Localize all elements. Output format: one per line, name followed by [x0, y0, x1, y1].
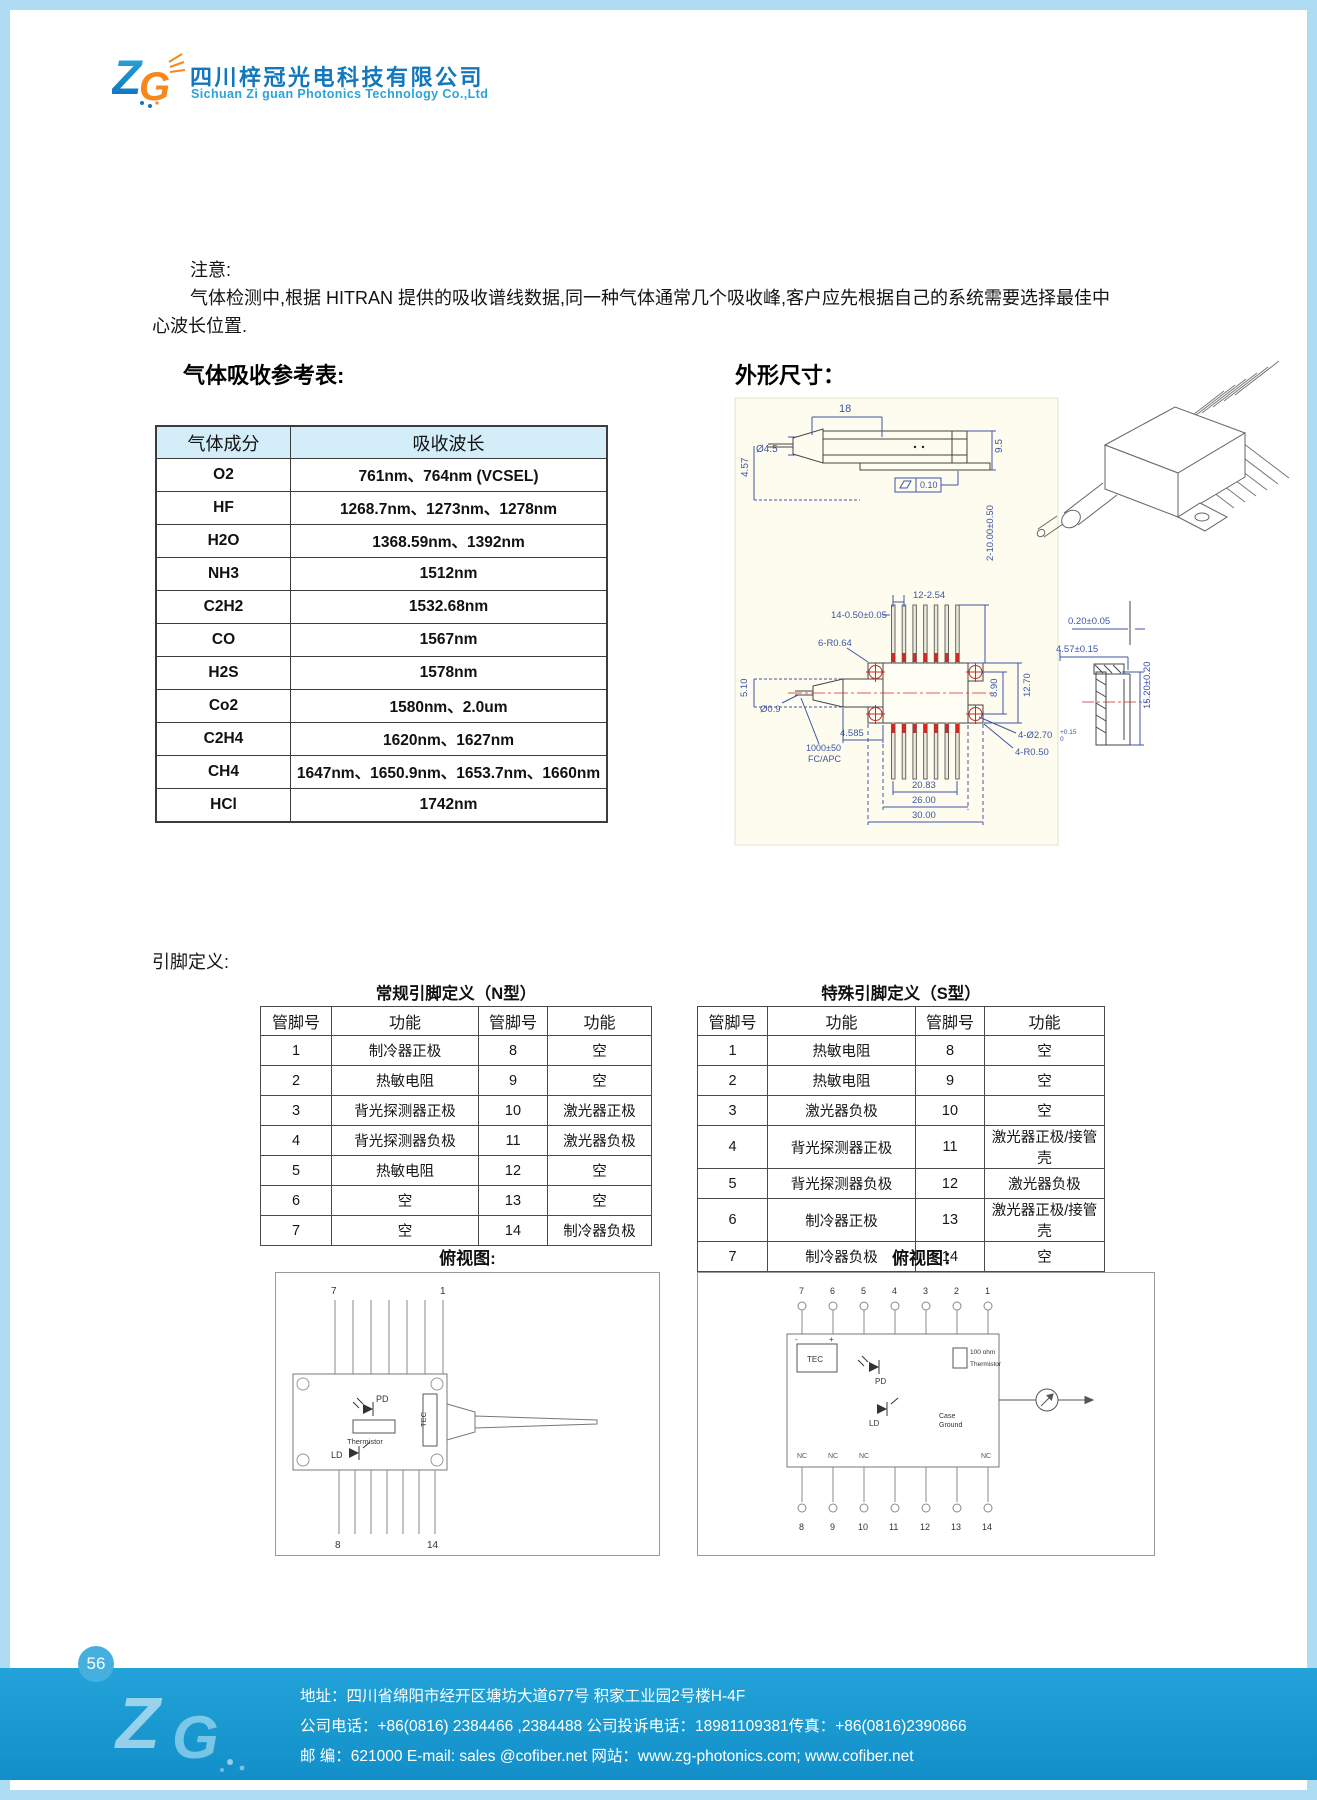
weld-dot — [914, 446, 916, 448]
weld-dot — [922, 446, 924, 448]
s-bottom-pin-num: 14 — [982, 1522, 992, 1532]
table-cell: 激光器正极 — [548, 1096, 652, 1126]
table-cell: 11 — [479, 1126, 548, 1156]
s-bottom-pin-num: 13 — [951, 1522, 961, 1532]
table-cell: 2 — [698, 1066, 768, 1096]
column-header: 管脚号 — [479, 1007, 548, 1036]
frame-top — [0, 0, 1317, 10]
dim-flatness: 0.10 — [920, 480, 938, 490]
table-cell: 1567nm — [291, 624, 608, 657]
s-bottom-pin-num: 8 — [799, 1522, 804, 1532]
table-cell: 背光探测器正极 — [332, 1096, 479, 1126]
table-cell: 背光探测器正极 — [768, 1126, 916, 1169]
table-cell: 1512nm — [291, 558, 608, 591]
table-row: 6制冷器正极13激光器正极/接管壳 — [698, 1199, 1105, 1242]
table-row: Co21580nm、2.0um — [156, 690, 607, 723]
s-bottom-pin-num: 11 — [889, 1522, 898, 1532]
s-res-label: 100 ohm — [970, 1349, 995, 1356]
dim-pin-pitch: 12-2.54 — [913, 590, 945, 601]
s-top-pin-num: 6 — [830, 1286, 835, 1296]
table-cell: H2S — [156, 657, 291, 690]
table-row: 6空13空 — [261, 1186, 652, 1216]
column-header: 管脚号 — [261, 1007, 332, 1036]
dim-side-height: 4.57±0.15 — [1056, 644, 1098, 655]
table-row: 1制冷器正极8空 — [261, 1036, 652, 1066]
table-row: 7空14制冷器负极 — [261, 1216, 652, 1246]
table-row: 3背光探测器正极10激光器正极 — [261, 1096, 652, 1126]
s-case-label2: Ground — [939, 1422, 962, 1429]
table-cell: 空 — [332, 1186, 479, 1216]
table-cell: 3 — [261, 1096, 332, 1126]
table-cell: 激光器正极/接管壳 — [985, 1199, 1105, 1242]
table-cell: 10 — [479, 1096, 548, 1126]
s-top-pin-num: 3 — [923, 1286, 928, 1296]
dim-95: 9.5 — [994, 439, 1005, 453]
dim-w3: 30.00 — [912, 810, 936, 821]
table-row: 2热敏电阻9空 — [698, 1066, 1105, 1096]
table-cell: 3 — [698, 1096, 768, 1126]
dim-nose-length: 4.585 — [840, 728, 864, 739]
table-row: HCl1742nm — [156, 789, 607, 823]
table-cell: O2 — [156, 459, 291, 492]
table-row: 4背光探测器负极11激光器负极 — [261, 1126, 652, 1156]
s-topview-label: 俯视图： — [697, 1244, 1155, 1269]
footer-logo-icon: Z G — [110, 1670, 300, 1778]
table-cell: 热敏电阻 — [768, 1036, 916, 1066]
n-pd-label: PD — [376, 1394, 389, 1404]
table-cell: 1580nm、2.0um — [291, 690, 608, 723]
table-cell: 空 — [985, 1096, 1105, 1126]
section-geometry — [1094, 664, 1130, 745]
table-cell: H2O — [156, 525, 291, 558]
n-pin8-label: 8 — [335, 1540, 341, 1551]
dim-pin-length: 2-10.00±0.50 — [985, 505, 996, 561]
s-tec-label: TEC — [807, 1355, 823, 1364]
table-cell: 空 — [548, 1186, 652, 1216]
table-cell: 1647nm、1650.9nm、1653.7nm、1660nm — [291, 756, 608, 789]
table-cell: 2 — [261, 1066, 332, 1096]
note-line2: 心波长位置. — [152, 312, 247, 338]
table-header-row: 管脚号功能管脚号功能 — [261, 1007, 652, 1036]
table-row: CH41647nm、1650.9nm、1653.7nm、1660nm — [156, 756, 607, 789]
s-tec-minus: - — [795, 1335, 798, 1344]
s-bottom-pin-num: 10 — [858, 1522, 868, 1532]
table-row: 1热敏电阻8空 — [698, 1036, 1105, 1066]
table-cell: 激光器正极/接管壳 — [985, 1126, 1105, 1169]
table-cell: 5 — [698, 1169, 768, 1199]
table-row: 2热敏电阻9空 — [261, 1066, 652, 1096]
logo-rays-icon — [169, 54, 185, 72]
dim-fiber-stub: Ø0.9 — [760, 704, 781, 715]
table-row: H2S1578nm — [156, 657, 607, 690]
table-cell: 1 — [261, 1036, 332, 1066]
table-row: C2H21532.68nm — [156, 591, 607, 624]
dim-hole-span: 8.90 — [989, 679, 1000, 698]
page-number-badge: 56 — [78, 1646, 114, 1682]
column-header: 功能 — [768, 1007, 916, 1036]
table-row: C2H41620nm、1627nm — [156, 723, 607, 756]
s-case-label1: Case — [939, 1413, 955, 1420]
dim-side-length: 15.20±0.20 — [1142, 662, 1153, 709]
table-cell: 热敏电阻 — [332, 1066, 479, 1096]
column-header: 管脚号 — [698, 1007, 768, 1036]
table-cell: 13 — [479, 1186, 548, 1216]
table-cell: 14 — [479, 1216, 548, 1246]
footer-mail-web: 邮 编：621000 E-mail: sales @cofiber.net 网站… — [300, 1742, 967, 1772]
s-nc-label: NC — [797, 1453, 807, 1460]
footer-logo-z: Z — [114, 1684, 163, 1764]
dim-457: 4.57 — [740, 457, 751, 477]
footer-address: 地址：四川省绵阳市经开区塘坊大道677号 积家工业园2号楼H-4F — [300, 1682, 967, 1712]
gas-table-title: 气体吸收参考表: — [183, 358, 344, 390]
footer-phone: 公司电话：+86(0816) 2384466 ,2384488 公司投诉电话：1… — [300, 1712, 967, 1742]
isometric-view — [1036, 361, 1289, 538]
dim-ear-radius: 6-R0.64 — [818, 638, 852, 649]
company-name-en: Sichuan Zi guan Photonics Technology Co.… — [191, 87, 488, 101]
table-cell: 激光器负极 — [768, 1096, 916, 1126]
company-logo: Z G — [112, 50, 186, 108]
pin-definition-label: 引脚定义: — [152, 948, 229, 974]
dim-fiber-length: 1000±50 — [806, 743, 841, 753]
dim-18: 18 — [839, 403, 851, 415]
table-row: HF1268.7nm、1273nm、1278nm — [156, 492, 607, 525]
column-header: 管脚号 — [916, 1007, 985, 1036]
s-resistor-box — [953, 1348, 967, 1368]
table-cell: 1 — [698, 1036, 768, 1066]
table-cell: 空 — [548, 1156, 652, 1186]
note-title: 注意: — [190, 256, 231, 282]
table-cell: 激光器负极 — [548, 1126, 652, 1156]
footer-contact-block: 地址：四川省绵阳市经开区塘坊大道677号 积家工业园2号楼H-4F 公司电话：+… — [300, 1682, 967, 1772]
table-cell: 761nm、764nm (VCSEL) — [291, 459, 608, 492]
table-cell: 4 — [261, 1126, 332, 1156]
s-ld-label: LD — [869, 1419, 879, 1428]
n-ld-label: LD — [331, 1450, 343, 1460]
s-nc-label: NC — [859, 1453, 869, 1460]
s-tec-plus: + — [829, 1335, 834, 1344]
table-cell: 9 — [916, 1066, 985, 1096]
table-cell: CH4 — [156, 756, 291, 789]
table-cell: 热敏电阻 — [768, 1066, 916, 1096]
table-cell: 激光器负极 — [985, 1169, 1105, 1199]
dim-fiber-dia: Ø4.5 — [756, 444, 778, 455]
table-row: O2761nm、764nm (VCSEL) — [156, 459, 607, 492]
table-cell: 制冷器正极 — [768, 1199, 916, 1242]
dim-hole-tol: +0.15 — [1060, 729, 1077, 736]
table-cell: 8 — [479, 1036, 548, 1066]
table-cell: NH3 — [156, 558, 291, 591]
dim-hole-dia: 4-Ø2.70 — [1018, 730, 1052, 741]
outline-drawing: 18 Ø4.5 4.57 9.5 0.10 — [700, 345, 1300, 857]
frame-left — [0, 0, 10, 1800]
table-cell: 1368.59nm、1392nm — [291, 525, 608, 558]
dim-w2: 26.00 — [912, 795, 936, 806]
table-cell: 8 — [916, 1036, 985, 1066]
dim-pin-width: 14-0.50±0.05 — [831, 610, 887, 621]
table-row: CO1567nm — [156, 624, 607, 657]
table-cell: 背光探测器负极 — [768, 1169, 916, 1199]
s-top-pin-num: 4 — [892, 1286, 897, 1296]
s-topview-diagram: 7 6 5 4 3 2 1 TEC - + PD — [697, 1272, 1155, 1556]
table-cell: 12 — [479, 1156, 548, 1186]
column-header: 气体成分 — [156, 426, 291, 459]
table-row: 4背光探测器正极11激光器正极/接管壳 — [698, 1126, 1105, 1169]
s-top-pin-num: 5 — [861, 1286, 866, 1296]
table-cell: 空 — [985, 1036, 1105, 1066]
s-nc-label: NC — [828, 1453, 838, 1460]
table-cell: 9 — [479, 1066, 548, 1096]
s-nc-label: NC — [981, 1453, 991, 1460]
table-cell: 7 — [261, 1216, 332, 1246]
table-cell: 制冷器正极 — [332, 1036, 479, 1066]
dim-w1: 20.83 — [912, 780, 936, 791]
table-cell: 5 — [261, 1156, 332, 1186]
table-cell: 空 — [985, 1066, 1105, 1096]
table-cell: 1268.7nm、1273nm、1278nm — [291, 492, 608, 525]
table-cell: 12 — [916, 1169, 985, 1199]
table-cell: 6 — [261, 1186, 332, 1216]
n-pin7-label: 7 — [331, 1286, 337, 1297]
table-cell: 11 — [916, 1126, 985, 1169]
table-cell: 1578nm — [291, 657, 608, 690]
table-cell: 1742nm — [291, 789, 608, 823]
n-thermistor-box — [353, 1420, 395, 1433]
table-cell: 空 — [332, 1216, 479, 1246]
logo-g-glyph: G — [139, 65, 170, 108]
table-cell: CO — [156, 624, 291, 657]
table-cell: 热敏电阻 — [332, 1156, 479, 1186]
table-cell: HCl — [156, 789, 291, 823]
dim-corner-radius: 4-R0.50 — [1015, 747, 1049, 758]
table-row: NH31512nm — [156, 558, 607, 591]
s-bottom-pin-num: 12 — [920, 1522, 930, 1532]
table-cell: Co2 — [156, 690, 291, 723]
table-cell: 空 — [548, 1066, 652, 1096]
dim-body-width: 12.70 — [1022, 673, 1033, 697]
table-cell: 制冷器负极 — [548, 1216, 652, 1246]
n-thermistor-label: Thermistor — [347, 1437, 383, 1446]
gas-absorption-table: 气体成分吸收波长O2761nm、764nm (VCSEL)HF1268.7nm、… — [155, 425, 608, 823]
column-header: 功能 — [332, 1007, 479, 1036]
table-cell: 10 — [916, 1096, 985, 1126]
dim-connector: FC/APC — [808, 754, 842, 764]
s-table-title: 特殊引脚定义（S型） — [697, 980, 1105, 1004]
s-bottom-pin-num: 9 — [830, 1522, 835, 1532]
table-cell: 13 — [916, 1199, 985, 1242]
n-topview-diagram: 7 1 PD TEC Thermistor LD 8 — [275, 1272, 660, 1556]
column-header: 功能 — [985, 1007, 1105, 1036]
table-cell: 6 — [698, 1199, 768, 1242]
n-tec-label: TEC — [419, 1411, 428, 1427]
table-cell: 4 — [698, 1126, 768, 1169]
s-thermistor-label: Thermistor — [970, 1361, 1002, 1368]
dim-lid: 0.20±0.05 — [1068, 616, 1110, 627]
datasheet-page: Z G 四川梓冠光电科技有限公司 Sichuan Zi guan Photoni… — [0, 0, 1317, 1800]
n-topview-label: 俯视图: — [275, 1244, 660, 1269]
s-pin-table: 管脚号功能管脚号功能1热敏电阻8空2热敏电阻9空3激光器负极10空4背光探测器正… — [697, 1006, 1105, 1272]
s-top-pin-num: 1 — [985, 1286, 990, 1296]
table-cell: C2H2 — [156, 591, 291, 624]
table-header-row: 气体成分吸收波长 — [156, 426, 607, 459]
dim-nose-height: 5.10 — [739, 679, 750, 698]
n-pin14-label: 14 — [427, 1540, 439, 1551]
table-cell: 空 — [548, 1036, 652, 1066]
table-header-row: 管脚号功能管脚号功能 — [698, 1007, 1105, 1036]
table-cell: HF — [156, 492, 291, 525]
n-pin-table: 管脚号功能管脚号功能1制冷器正极8空2热敏电阻9空3背光探测器正极10激光器正极… — [260, 1006, 652, 1246]
s-pd-label: PD — [875, 1377, 886, 1386]
table-cell: 1532.68nm — [291, 591, 608, 624]
note-line1: 气体检测中,根据 HITRAN 提供的吸收谱线数据,同一种气体通常几个吸收峰,客… — [190, 284, 1110, 310]
dim-hole-tol-low: 0 — [1060, 736, 1064, 743]
cross-section-view: 0.20±0.05 4.57±0.15 15.20±0.20 — [1056, 601, 1153, 745]
n-pin1-label: 1 — [440, 1286, 446, 1297]
n-table-title: 常规引脚定义（N型） — [260, 980, 652, 1004]
s-top-pin-num: 7 — [799, 1286, 804, 1296]
table-row: 5背光探测器负极12激光器负极 — [698, 1169, 1105, 1199]
table-row: H2O1368.59nm、1392nm — [156, 525, 607, 558]
column-header: 功能 — [548, 1007, 652, 1036]
frame-right — [1307, 0, 1317, 1800]
column-header: 吸收波长 — [291, 426, 608, 459]
table-row: 5热敏电阻12空 — [261, 1156, 652, 1186]
s-top-pin-num: 2 — [954, 1286, 959, 1296]
table-cell: C2H4 — [156, 723, 291, 756]
frame-bottom — [0, 1790, 1317, 1800]
table-cell: 背光探测器负极 — [332, 1126, 479, 1156]
footer-logo-g: G — [172, 1704, 219, 1771]
table-row: 3激光器负极10空 — [698, 1096, 1105, 1126]
table-cell: 1620nm、1627nm — [291, 723, 608, 756]
